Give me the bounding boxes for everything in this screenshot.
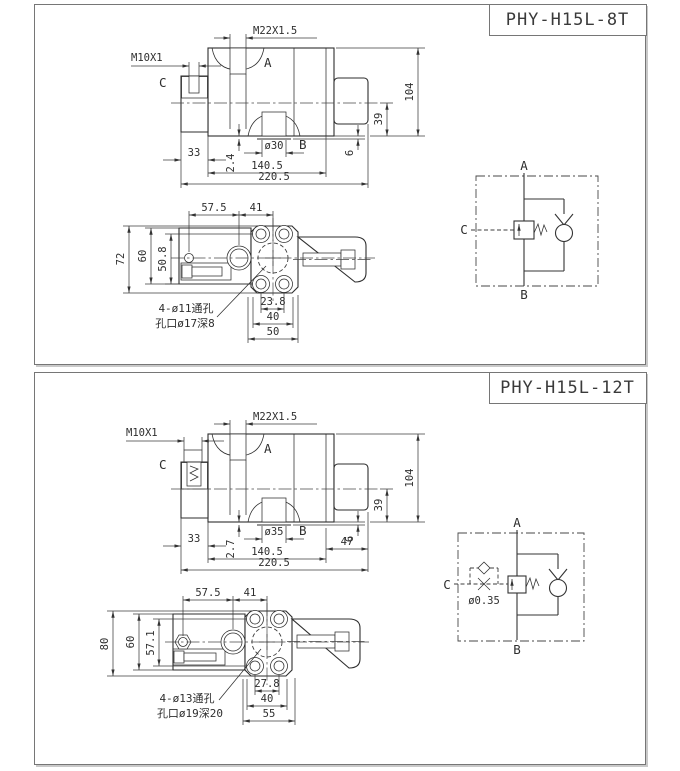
dim-55-text: 55 bbox=[263, 708, 276, 720]
thread-side-label: M10X1 bbox=[126, 427, 158, 439]
check-valve-ball bbox=[550, 580, 567, 597]
front-view-12t: A B C M22X1.5 M10X1 104 bbox=[126, 411, 425, 574]
dim-bore-text: ø30 bbox=[265, 140, 284, 152]
schematic-12t: A B C ø0.35 bbox=[443, 515, 584, 657]
dim-40-text: 40 bbox=[267, 311, 280, 323]
dim-220-5-text: 220.5 bbox=[258, 171, 290, 183]
dim-27-8: 27.8 bbox=[254, 675, 279, 695]
dim-bore-30: ø30 bbox=[244, 140, 304, 157]
dim-57-1-text: 57.1 bbox=[145, 630, 157, 655]
port-b-bore bbox=[262, 112, 286, 136]
dim-104-text: 104 bbox=[404, 469, 416, 488]
dim-50-text: 50 bbox=[267, 326, 280, 338]
dim-41-text: 41 bbox=[244, 587, 257, 599]
sheet-phy-h15l-12t: A B C M22X1.5 M10X1 104 bbox=[34, 372, 646, 765]
port-a-bore bbox=[230, 434, 246, 460]
sch-port-c: C bbox=[460, 222, 468, 237]
plan-view-12t: 57.5 41 80 60 bbox=[99, 587, 369, 725]
dim-27-8-text: 27.8 bbox=[254, 678, 279, 690]
dim-39: 39 bbox=[373, 489, 393, 522]
dim-bore-35: ø35 bbox=[244, 526, 304, 543]
sch-port-a: A bbox=[520, 158, 528, 173]
dim-2-4-text: 2.4 bbox=[225, 154, 237, 173]
stub-bolt-body bbox=[192, 267, 222, 276]
right-cylinder bbox=[334, 78, 368, 124]
sch-port-b: B bbox=[520, 287, 528, 302]
holes-note-line2: 孔口ø17深8 bbox=[155, 317, 215, 330]
port-a-label: A bbox=[264, 55, 272, 70]
thread-top-label: M22X1.5 bbox=[253, 411, 297, 423]
dim-60-text: 60 bbox=[137, 250, 149, 263]
holes-note-line1: 4-ø11通孔 bbox=[158, 302, 213, 315]
sheet-phy-h15l-8t: A B C M22X1.5 M10X1 104 bbox=[34, 4, 646, 365]
dim-6-text: 6 bbox=[344, 150, 356, 156]
dim-thread-top: M22X1.5 bbox=[214, 411, 317, 434]
schematic-boundary bbox=[476, 176, 598, 286]
sch-port-c: C bbox=[443, 577, 451, 592]
dim-47-text: 47 bbox=[341, 536, 354, 548]
dim-33-text: 33 bbox=[188, 147, 201, 159]
dim-39: 39 bbox=[373, 103, 393, 136]
model-title-box: PHY-H15L-12T bbox=[489, 372, 647, 404]
dim-39-text: 39 bbox=[373, 113, 385, 126]
dim-33-text: 33 bbox=[188, 533, 201, 545]
sch-port-b: B bbox=[513, 642, 521, 657]
front-view-8t: A B C M22X1.5 M10X1 104 bbox=[131, 25, 425, 188]
plan-view-8t: 57.5 41 72 60 bbox=[115, 202, 375, 343]
drawing-12t: A B C M22X1.5 M10X1 104 bbox=[35, 373, 644, 763]
dim-2-7-text: 2.7 bbox=[225, 540, 237, 559]
filter-symbol bbox=[478, 562, 490, 574]
port-b-bore bbox=[262, 498, 286, 522]
sch-port-a: A bbox=[513, 515, 521, 530]
model-title-box: PHY-H15L-8T bbox=[489, 4, 647, 36]
model-name: PHY-H15L-12T bbox=[500, 378, 635, 398]
relief-valve-symbol bbox=[514, 221, 534, 239]
stub-bolt-head bbox=[182, 265, 192, 278]
check-valve-seat bbox=[549, 569, 567, 580]
relief-valve-symbol bbox=[508, 576, 526, 593]
side-port-cavity bbox=[187, 462, 201, 486]
dim-50-8-text: 50.8 bbox=[157, 246, 169, 271]
check-valve-seat bbox=[555, 214, 573, 225]
holes-note-line2: 孔口ø19深20 bbox=[157, 707, 223, 720]
dim-39-text: 39 bbox=[373, 499, 385, 512]
stub-bolt-head bbox=[174, 651, 184, 663]
orifice-label: ø0.35 bbox=[468, 595, 500, 607]
right-cylinder bbox=[334, 464, 368, 510]
dim-72-text: 72 bbox=[115, 253, 127, 266]
dim-33: 33 bbox=[163, 518, 226, 551]
holes-note-line1: 4-ø13通孔 bbox=[159, 692, 214, 705]
port-a-label: A bbox=[264, 441, 272, 456]
side-port-slot bbox=[189, 76, 199, 93]
dim-thread-top: M22X1.5 bbox=[214, 25, 317, 48]
dim-23-8: 23.8 bbox=[260, 293, 285, 313]
model-name: PHY-H15L-8T bbox=[506, 10, 630, 30]
thread-side-label: M10X1 bbox=[131, 52, 163, 64]
dim-80-text: 80 bbox=[99, 638, 111, 651]
dim-60-text: 60 bbox=[125, 636, 137, 649]
port-c-label: C bbox=[159, 75, 167, 90]
spring-symbol bbox=[526, 578, 539, 589]
dim-41-text: 41 bbox=[250, 202, 263, 214]
dim-bore-text: ø35 bbox=[265, 526, 284, 538]
schematic-8t: A B C bbox=[460, 158, 598, 302]
dim-104-text: 104 bbox=[404, 83, 416, 102]
dim-220-5-text: 220.5 bbox=[258, 557, 290, 569]
port-a-bore bbox=[230, 48, 246, 74]
dim-40-text: 40 bbox=[261, 693, 274, 705]
dim-33: 33 bbox=[163, 132, 226, 165]
drawing-8t: A B C M22X1.5 M10X1 104 bbox=[35, 5, 644, 363]
side-port-plug bbox=[184, 450, 202, 462]
stub-bolt-body bbox=[184, 653, 216, 661]
thread-top-label: M22X1.5 bbox=[253, 25, 297, 37]
dim-23-8-text: 23.8 bbox=[260, 296, 285, 308]
dim-57-5-text: 57.5 bbox=[201, 202, 226, 214]
check-valve-ball bbox=[556, 225, 573, 242]
dim-57-5-text: 57.5 bbox=[195, 587, 220, 599]
port-c-label: C bbox=[159, 457, 167, 472]
spring-symbol bbox=[534, 224, 547, 235]
